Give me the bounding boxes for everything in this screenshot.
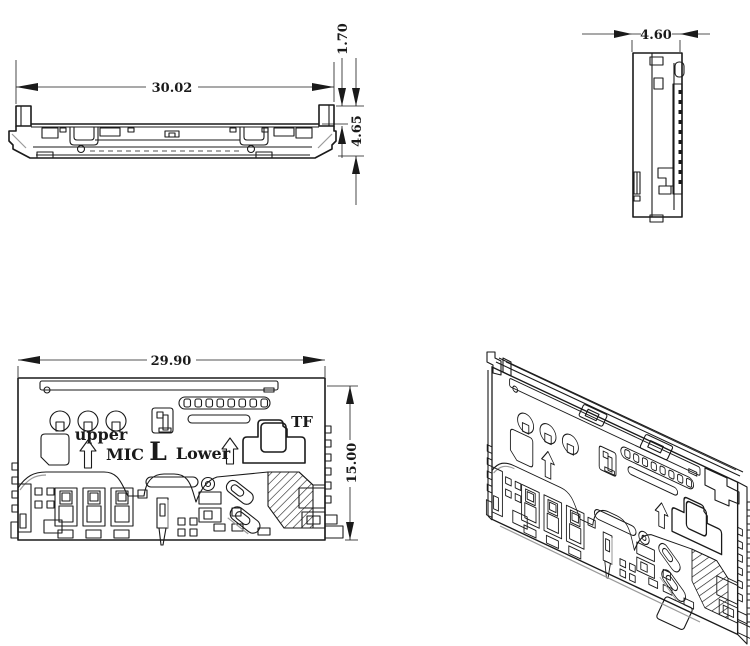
iso-view — [486, 352, 750, 646]
label-l: L — [149, 437, 167, 466]
dimension-side-depth: 4.60 — [582, 26, 710, 52]
dim-side-depth-label: 4.60 — [640, 28, 672, 43]
plan-labels: upper MIC L Lower TF — [75, 413, 314, 466]
front-view-details — [37, 127, 312, 158]
side-view: 4.60 — [582, 26, 710, 222]
side-view-outline — [633, 53, 684, 222]
dim-front-width-label: 30.02 — [152, 81, 193, 96]
iso-foot — [656, 596, 693, 630]
plan-view: upper MIC L Lower TF 29.90 15.00 — [11, 351, 360, 545]
technical-drawing-canvas: 30.02 1.70 4.65 — [0, 0, 750, 646]
label-mic: MIC — [106, 445, 144, 464]
technical-drawing: 30.02 1.70 4.65 — [0, 0, 750, 646]
dimension-front-width: 30.02 — [16, 60, 334, 104]
dim-plan-width-label: 29.90 — [151, 354, 192, 369]
label-upper: upper — [75, 425, 128, 444]
label-lower: Lower — [176, 444, 231, 463]
dimension-plan-width: 29.90 — [18, 351, 325, 377]
front-view: 30.02 1.70 4.65 — [9, 23, 365, 205]
dim-front-tab-height-label: 1.70 — [336, 23, 351, 55]
dimension-plan-height: 15.00 — [327, 386, 360, 540]
dim-front-total-height-label: 4.65 — [350, 115, 365, 147]
label-tf: TF — [291, 413, 313, 431]
dim-plan-height-label: 15.00 — [345, 443, 360, 484]
